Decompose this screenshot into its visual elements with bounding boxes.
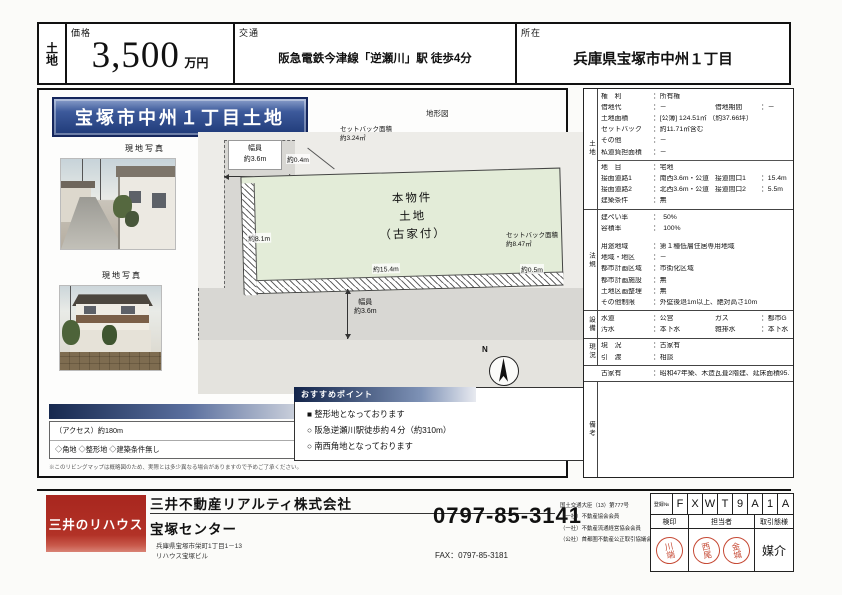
setback-area-top-label: セットバック面積 約3.24㎡ <box>340 126 392 144</box>
detail-row: 水道：公営ガス：都市G <box>598 313 793 324</box>
detail-label: その他制限 <box>601 299 653 307</box>
license-line: （一社）不動産協会会員 <box>560 512 648 523</box>
detail-label: その他 <box>601 137 653 145</box>
detail-value: ：無 <box>653 277 790 285</box>
detail-group: 設備水道：公営ガス：都市G汚水：本下水雑排水：本下水 <box>584 311 793 338</box>
detail-group-content: 古家有：昭和47年築、木造瓦葺2階建、延床面積95.74㎡ <box>598 366 793 381</box>
detail-label: 接面道路1 <box>601 175 653 183</box>
photo2-stone-wall <box>60 352 161 370</box>
point-item: ○ 南西角地となっております <box>307 438 451 454</box>
detail-value: ：南西3.6m・公道 <box>653 175 715 183</box>
detail-group: 古家有：昭和47年築、木造瓦葺2階建、延床面積95.74㎡ <box>584 366 793 382</box>
detail-group: 備考 <box>584 382 793 477</box>
property-type-cell: 土地 <box>39 24 67 83</box>
point-item: ○ 阪急逆瀬川駅徒歩約４分（約310m） <box>307 422 451 438</box>
detail-panel: 土地権 利：所有権借地代：－借地期間：－土地面積：[公簿] 124.51㎡ （約… <box>583 88 794 478</box>
detail-label: 引 渡 <box>601 354 653 362</box>
detail-label: 建ぺい率 <box>601 214 653 222</box>
detail-group-content: 水道：公営ガス：都市G汚水：本下水雑排水：本下水 <box>598 311 793 337</box>
detail-row: 容積率： 100% <box>598 223 793 234</box>
reg-code-cell: 1 <box>763 494 778 514</box>
reg-code-cell: W <box>703 494 718 514</box>
detail-row: 借地代：－借地期間：－ <box>598 102 793 113</box>
detail-value: ：第１種低層住居専用地域 <box>653 243 790 251</box>
photo2-tree <box>102 325 116 345</box>
detail-value: ：－ <box>653 137 790 145</box>
transaction-type-cell: 媒介 <box>755 529 793 571</box>
branch-name: 宝塚センター <box>150 518 237 538</box>
license-line: （公社）首都圏不動産公正取引協議会加盟 <box>560 535 648 546</box>
detail-label: セットバック <box>601 126 653 134</box>
detail-label: 地域・地区 <box>601 254 653 262</box>
setback-bottom-label: 約0.5m <box>520 264 544 274</box>
registration-table: 登録№ FXWT9A1A 検印担当者取引態様 川端 西尾金城 媒介 <box>650 493 794 572</box>
stamp-row: 川端 西尾金城 媒介 <box>651 529 793 571</box>
detail-value: ：北西3.6m・公道 <box>653 186 715 194</box>
location-cell: 所在 兵庫県宝塚市中州１丁目 <box>517 24 789 83</box>
detail-label: 水道 <box>601 315 653 323</box>
detail-value: ：－ <box>653 254 790 262</box>
rehouse-logo: 三井のリハウス <box>46 495 146 552</box>
detail-group: 法規建ぺい率： 50%容積率： 100%用途地域：第１種低層住居専用地域地域・地… <box>584 210 793 312</box>
detail-row: 建築条件：無 <box>598 196 793 207</box>
detail-value: ：無 <box>653 197 790 205</box>
compass-icon: N <box>489 356 519 386</box>
detail-row: セットバック：約11.71㎡含む <box>598 125 793 136</box>
price-unit: 万円 <box>184 56 208 70</box>
detail-label: 接道間口2 <box>715 186 761 194</box>
detail-value: ：公営 <box>653 315 715 323</box>
access-box: （アクセス）約180m ◇角地 ◇整形地 ◇建築条件無し <box>49 421 301 459</box>
location-label: 所在 <box>521 26 541 39</box>
hanko-stamp: 川端 <box>653 534 685 566</box>
photo2-tree <box>62 320 80 345</box>
compass-needle <box>499 358 508 383</box>
detail-row: 私道負担面積：－ <box>598 147 793 158</box>
site-photo-1 <box>60 158 176 250</box>
detail-label: 建築条件 <box>601 197 653 205</box>
license-line: 国土交通大臣（13）第777号 <box>560 501 648 512</box>
side-length-label: 約8.1m <box>247 233 271 244</box>
registration-label: 登録№ <box>651 494 673 514</box>
photo1-window <box>152 193 166 207</box>
detail-label: ガス <box>715 315 761 323</box>
detail-group-label: 現況 <box>584 339 598 365</box>
utility-pole <box>100 159 101 200</box>
detail-row: 土地区画整理：無 <box>598 286 793 297</box>
agent-stamp-zone: 西尾金城 <box>689 529 755 571</box>
detail-value: ：[公簿] 124.51㎡ （約37.66坪） <box>653 115 790 123</box>
detail-row: 現 況：古家有 <box>598 341 793 352</box>
detail-value: ：－ <box>761 104 790 112</box>
detail-row: 地 目：宅地 <box>598 162 793 173</box>
detail-row: 古家有：昭和47年築、木造瓦葺2階建、延床面積95.74㎡ <box>598 368 793 379</box>
detail-group-label: 備考 <box>584 382 598 477</box>
main-content-box: 宝塚市中州１丁目土地 地形図 現地写真 現地写真 <box>37 88 568 478</box>
detail-value: ：都市G <box>761 315 790 323</box>
price-cell: 価格 3,500 万円 <box>67 24 235 83</box>
detail-label: 現 況 <box>601 342 653 350</box>
detail-label: 接道間口1 <box>715 175 761 183</box>
detail-value: ： 50% <box>653 214 790 222</box>
detail-row: その他制限：外壁後退1m以上、絶対高さ10m <box>598 297 793 308</box>
transaction-type: 媒介 <box>762 542 786 559</box>
stamp-header: 検印 <box>651 515 689 528</box>
leader-line <box>307 148 334 170</box>
reg-code-cell: X <box>688 494 703 514</box>
detail-row: 接面道路1：南西3.6m・公道接道間口1：15.4m <box>598 173 793 184</box>
detail-group: 現況現 況：古家有引 渡：相談 <box>584 339 793 366</box>
road-bottom <box>198 288 605 341</box>
site-plan: 幅員 約3.6m 本物件 土地 （古家付） 約8.1m 約15.4m 約0.4m… <box>198 132 604 394</box>
hanko-stamp-text: 金城 <box>731 541 743 559</box>
site-plan-label: 地形図 <box>426 108 449 119</box>
detail-label: 接面道路2 <box>601 186 653 194</box>
detail-row: 権 利：所有権 <box>598 91 793 102</box>
detail-group-content: 建ぺい率： 50%容積率： 100%用途地域：第１種低層住居専用地域地域・地区：… <box>598 210 793 311</box>
hanko-stamp-text: 川端 <box>664 541 676 559</box>
ground-area <box>198 340 604 394</box>
page-title: 宝塚市中州１丁目土地 <box>52 97 308 137</box>
branch-address-line1: 兵庫県宝塚市栄町1丁目1－13 <box>156 540 242 550</box>
detail-row: その他：－ <box>598 136 793 147</box>
detail-label: 借地代 <box>601 104 653 112</box>
point-item: ■ 整形地となっております <box>307 406 451 422</box>
reg-code-cell: A <box>778 494 793 514</box>
detail-label: 地 目 <box>601 164 653 172</box>
location-value: 兵庫県宝塚市中州１丁目 <box>517 48 789 69</box>
detail-group-label: 設備 <box>584 311 598 337</box>
fax-number: FAX：0797-85-3181 <box>435 550 508 561</box>
detail-row: 地域・地区：－ <box>598 252 793 263</box>
feature-checkboxes: ◇角地 ◇整形地 ◇建築条件無し <box>50 441 300 459</box>
detail-spacer <box>598 234 793 241</box>
photo1-caption: 現地写真 <box>125 143 165 154</box>
detail-row: 建ぺい率： 50% <box>598 212 793 223</box>
detail-value: ：外壁後退1m以上、絶対高さ10m <box>653 299 790 307</box>
hanko-stamp: 西尾 <box>690 534 722 566</box>
detail-row: 接面道路2：北西3.6m・公道接道間口2：5.5m <box>598 185 793 196</box>
parcel-polygon: 本物件 土地 （古家付） 約8.1m 約15.4m <box>240 168 563 295</box>
detail-value: ：相談 <box>653 354 790 362</box>
detail-group-label: 土地 <box>584 89 598 209</box>
detail-label: 権 利 <box>601 93 653 101</box>
property-flyer-page: 土地 価格 3,500 万円 交通 阪急電鉄今津線「逆瀬川」駅 徒歩4分 所在 … <box>0 0 842 595</box>
detail-value: ： 100% <box>653 225 790 233</box>
price-line: 3,500 万円 <box>67 34 233 77</box>
road-bottom-dimension-arrow <box>347 289 348 339</box>
bottom-length-label: 約15.4m <box>372 263 400 274</box>
photo2-window <box>84 306 96 314</box>
detail-value: ：5.5m <box>761 186 790 194</box>
detail-row: 用途地域：第１種低層住居専用地域 <box>598 241 793 252</box>
transport-value: 阪急電鉄今津線「逆瀬川」駅 徒歩4分 <box>235 50 515 66</box>
detail-label: 私道負担面積 <box>601 149 653 157</box>
detail-group-label: 法規 <box>584 210 598 311</box>
detail-value: ：市街化区域 <box>653 265 790 273</box>
detail-group-content: 現 況：古家有引 渡：相談 <box>598 339 793 365</box>
photo1-roof-right <box>116 166 175 177</box>
road-bottom-width-label: 幅員 約3.6m <box>354 298 377 317</box>
map-disclaimer: ※このリビングマップは概略図のため、実際とは多少異なる場合がありますので予めご了… <box>49 463 594 471</box>
recommended-points-list: ■ 整形地となっております○ 阪急逆瀬川駅徒歩約４分（約310m）○ 南西角地と… <box>307 406 451 455</box>
detail-label: 借地期間 <box>715 104 761 112</box>
detail-value: ：約11.71㎡含む <box>653 126 790 134</box>
detail-value: ：－ <box>653 149 790 157</box>
access-distance: （アクセス）約180m <box>50 422 300 441</box>
detail-label: 都市計画施設 <box>601 277 653 285</box>
footer: 三井のリハウス 三井不動産リアルティ株式会社 宝塚センター 兵庫県宝塚市栄町1丁… <box>37 489 791 573</box>
reg-code-cell: 9 <box>733 494 748 514</box>
site-photo-2 <box>59 285 162 371</box>
detail-row: 引 渡：相談 <box>598 352 793 363</box>
photo2-caption: 現地写真 <box>102 270 142 281</box>
detail-value: ：無 <box>653 288 790 296</box>
detail-label: 都市計画区域 <box>601 265 653 273</box>
hanko-stamp: 金城 <box>721 534 753 566</box>
photo2-balcony <box>76 315 149 323</box>
recommended-points-box: おすすめポイント ■ 整形地となっております○ 阪急逆瀬川駅徒歩約４分（約310… <box>294 387 605 461</box>
detail-value: ：本下水 <box>653 326 715 334</box>
check-stamp-zone: 川端 <box>651 529 689 571</box>
detail-label: 容積率 <box>601 225 653 233</box>
detail-group-content: 権 利：所有権借地代：－借地期間：－土地面積：[公簿] 124.51㎡ （約37… <box>598 89 793 209</box>
road-left-width-label: 幅員 約3.6m <box>228 140 282 170</box>
transport-cell: 交通 阪急電鉄今津線「逆瀬川」駅 徒歩4分 <box>235 24 517 83</box>
reg-code-cell: A <box>748 494 763 514</box>
stamp-header-row: 検印担当者取引態様 <box>651 515 793 529</box>
recommended-points-header: おすすめポイント <box>294 387 476 402</box>
detail-value: ：昭和47年築、木造瓦葺2階建、延床面積95.74㎡ <box>653 370 790 378</box>
detail-label: 土地面積 <box>601 115 653 123</box>
price-value: 3,500 <box>92 35 180 76</box>
detail-group-content <box>598 382 793 477</box>
detail-row: 土地面積：[公簿] 124.51㎡ （約37.66坪） <box>598 113 793 124</box>
detail-value: ：15.4m <box>761 175 790 183</box>
license-lines: 国土交通大臣（13）第777号（一社）不動産協会会員（一社）不動産流通経営協会会… <box>560 501 648 546</box>
hanko-stamp-text: 西尾 <box>700 541 712 559</box>
reg-code-cell: F <box>673 494 688 514</box>
setback-area-right-label: セットバック面積 約8.47㎡ <box>506 232 558 250</box>
company-name: 三井不動産リアルティ株式会社 <box>150 493 352 513</box>
detail-value: ：古家有 <box>653 342 790 350</box>
detail-label: 汚水 <box>601 326 653 334</box>
detail-label: 用途地域 <box>601 243 653 251</box>
branch-address-line2: リハウス宝塚ビル <box>156 550 208 560</box>
photo1-bush <box>125 211 139 227</box>
detail-value: ：宅地 <box>653 164 790 172</box>
detail-label: 古家有 <box>601 370 653 378</box>
transport-label: 交通 <box>239 26 259 39</box>
detail-row: 都市計画区域：市街化区域 <box>598 264 793 275</box>
detail-row: 汚水：本下水雑排水：本下水 <box>598 325 793 336</box>
detail-label: 雑排水 <box>715 326 761 334</box>
photo1-roof-left <box>61 181 95 188</box>
reg-code-cell: T <box>718 494 733 514</box>
stamp-header: 取引態様 <box>755 515 793 528</box>
detail-label: 土地区画整理 <box>601 288 653 296</box>
detail-divider <box>598 160 793 161</box>
detail-value: ：所有権 <box>653 93 790 101</box>
setback-top-label: 約0.4m <box>286 154 310 164</box>
header: 土地 価格 3,500 万円 交通 阪急電鉄今津線「逆瀬川」駅 徒歩4分 所在 … <box>37 22 791 85</box>
stamp-header: 担当者 <box>689 515 755 528</box>
detail-group: 土地権 利：所有権借地代：－借地期間：－土地面積：[公簿] 124.51㎡ （約… <box>584 89 793 210</box>
access-header-bar <box>49 404 301 419</box>
registration-code-row: 登録№ FXWT9A1A <box>651 494 793 515</box>
detail-row: 都市計画施設：無 <box>598 275 793 286</box>
detail-value: ：本下水 <box>761 326 790 334</box>
compass-north-label: N <box>482 345 488 354</box>
property-type-label: 土地 <box>44 42 61 66</box>
parcel-text: 本物件 土地 （古家付） <box>322 188 503 246</box>
photo2-window <box>121 306 135 314</box>
license-line: （一社）不動産流通経営協会会員 <box>560 524 648 535</box>
detail-value: ：－ <box>653 104 715 112</box>
